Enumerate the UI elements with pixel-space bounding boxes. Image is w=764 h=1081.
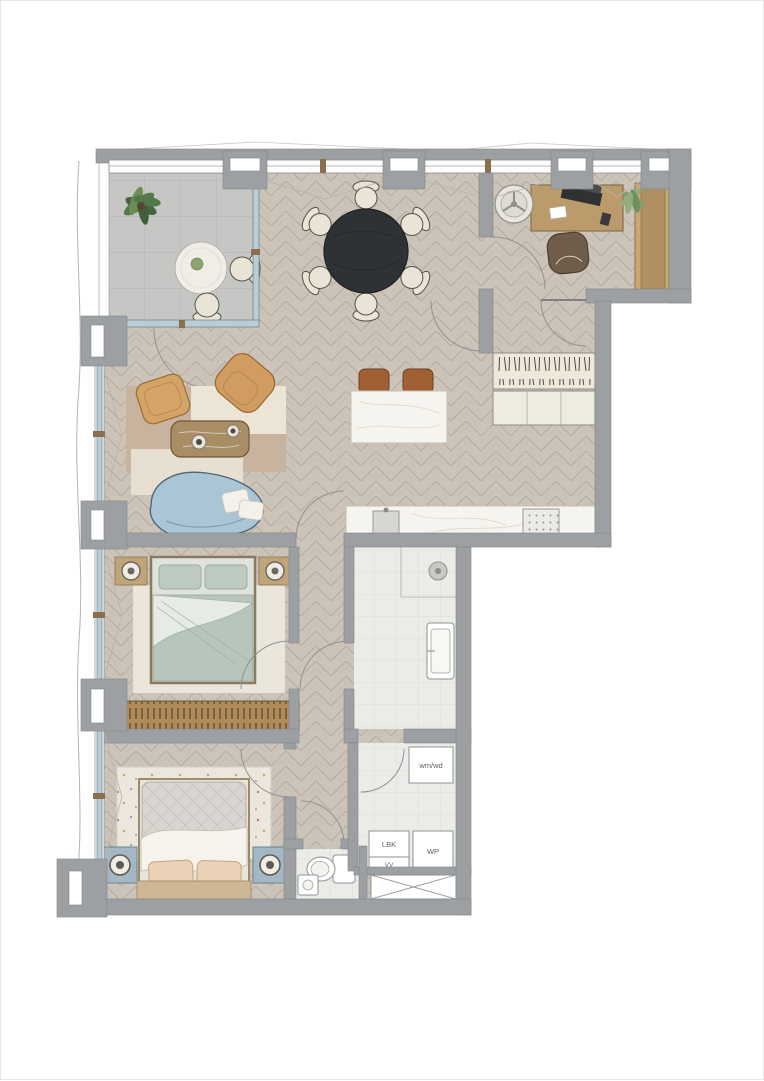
cooktop: [523, 509, 559, 535]
wall-toilet-shaft: [359, 846, 367, 899]
dining-chair: [353, 293, 379, 321]
wall-right-mid: [595, 301, 611, 547]
kitchen-island: [351, 391, 447, 443]
wall-bottom: [61, 899, 471, 915]
wall-toilet-top: [341, 839, 348, 849]
round-decor: [495, 185, 533, 223]
mullion: [485, 159, 491, 173]
bar-stool: [403, 369, 433, 393]
bed: [137, 779, 251, 899]
balcony-floor: [105, 165, 257, 327]
pillow: [205, 565, 247, 589]
mullion: [93, 431, 105, 437]
pillow: [238, 499, 264, 520]
wall-living-bath: [344, 533, 611, 547]
wall-bath-left: [344, 689, 354, 731]
wardrobe: [113, 701, 299, 731]
wall-utility-shaft: [354, 867, 471, 875]
balcony-chair: [193, 293, 221, 323]
coat-rack-hooks: [497, 357, 591, 385]
small-basin: [298, 875, 318, 895]
lbk-label: LBK: [382, 840, 396, 849]
bed: [151, 557, 255, 683]
washer-dryer-label: wm/wd: [418, 761, 442, 770]
wall-master-hall: [289, 689, 299, 731]
balcony-table: [175, 242, 227, 294]
wall-toilet-top: [284, 839, 303, 849]
wall-bath-bottom: [344, 729, 358, 743]
wall-office-left: [479, 289, 493, 353]
mullion: [251, 249, 260, 255]
wall-hall-utility: [348, 743, 358, 871]
balcony-railing: [99, 161, 109, 329]
wall-office-left: [479, 173, 493, 237]
paper: [549, 206, 566, 219]
mullion: [320, 159, 326, 173]
washbasin: [427, 623, 454, 679]
pillow: [159, 565, 201, 589]
floor-plan: wm/wd LBK VV WP: [1, 1, 764, 1081]
desk-chair: [546, 231, 590, 275]
shaft: [371, 875, 456, 899]
dining-table: [324, 209, 408, 293]
dining-chair: [353, 181, 379, 209]
wall-bedroom2-right: [284, 743, 296, 749]
facade-outline: [77, 161, 81, 913]
entry-hall: [493, 353, 595, 425]
headboard: [137, 881, 251, 899]
mullion: [93, 612, 105, 618]
hall-cabinet: [493, 391, 595, 425]
mullion: [93, 793, 105, 799]
wall-master-hall: [289, 547, 299, 643]
mullion: [179, 320, 185, 328]
faucet: [384, 508, 389, 513]
bar-stool: [359, 369, 389, 393]
coffee-table: [171, 421, 249, 457]
wp-label: WP: [427, 847, 439, 856]
wall-right-lower: [456, 547, 471, 915]
wall-bath-left: [344, 547, 354, 643]
floor-plan-page: wm/wd LBK VV WP: [0, 0, 764, 1080]
wall-office-right: [669, 149, 691, 303]
